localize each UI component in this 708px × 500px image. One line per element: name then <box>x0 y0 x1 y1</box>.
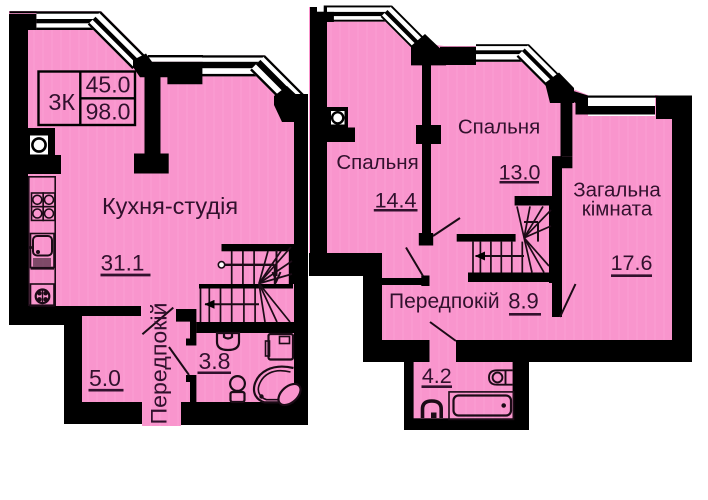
svg-text:31.1: 31.1 <box>101 251 145 276</box>
svg-text:8.9: 8.9 <box>508 289 539 314</box>
svg-text:13.0: 13.0 <box>499 161 541 185</box>
svg-text:3К: 3К <box>48 89 75 115</box>
svg-text:кімната: кімната <box>582 198 653 221</box>
svg-text:Передпокій: Передпокій <box>147 303 172 425</box>
svg-text:Спальня: Спальня <box>458 116 540 139</box>
svg-text:Кухня-студія: Кухня-студія <box>102 193 238 219</box>
svg-text:Передпокій: Передпокій <box>389 290 500 313</box>
svg-text:45.0: 45.0 <box>86 72 131 98</box>
svg-text:Спальня: Спальня <box>336 151 418 174</box>
svg-text:4.2: 4.2 <box>422 364 452 388</box>
svg-text:14.4: 14.4 <box>375 189 417 213</box>
svg-text:98.0: 98.0 <box>86 99 131 125</box>
svg-text:5.0: 5.0 <box>89 365 121 391</box>
svg-text:3.8: 3.8 <box>199 348 231 374</box>
svg-text:17.6: 17.6 <box>611 251 653 275</box>
